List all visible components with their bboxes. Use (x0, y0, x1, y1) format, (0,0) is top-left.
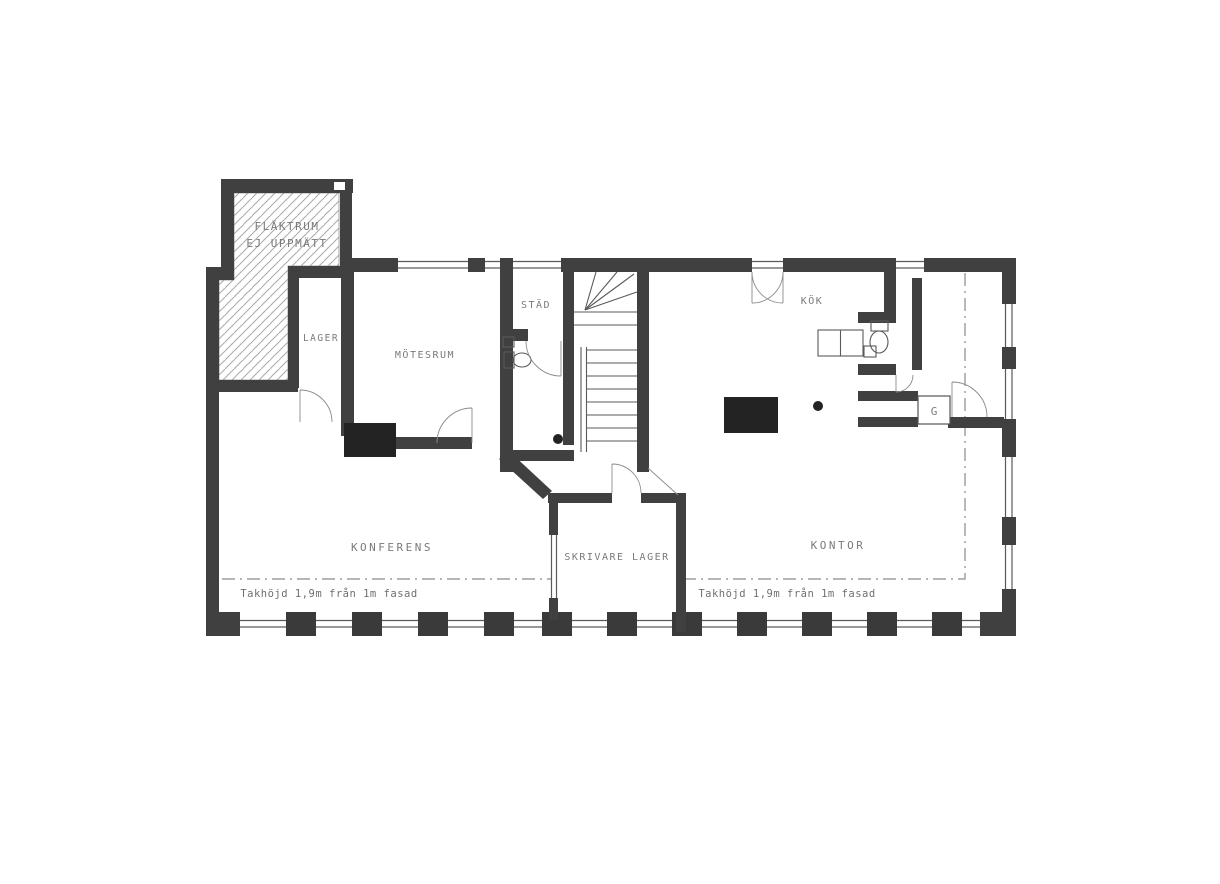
room-label-garderob: G (931, 405, 938, 418)
room-label-flaktrum-line2: EJ UPPMÄTT (246, 237, 327, 250)
toilet-bowl-right (870, 331, 888, 353)
toilet-bowl-left (513, 353, 531, 367)
column-dot-right (813, 401, 823, 411)
pillar-shaft-right (724, 397, 778, 433)
glazed-partition (552, 535, 557, 598)
annotation-ceiling-height-right: Takhöjd 1,9m från 1m fasad (698, 587, 875, 600)
room-label-konferens: KONFERENS (351, 541, 433, 554)
room-label-stad: STÄD (521, 298, 551, 311)
ceiling-height-dashed-lines (222, 273, 965, 579)
annotation-ceiling-height-left: Takhöjd 1,9m från 1m fasad (240, 587, 417, 600)
scanned-floorplan-page: FLÄKTRUM EJ UPPMÄTT LAGER MÖTESRUM STÄD … (0, 0, 1220, 884)
floor-plan-drawing: FLÄKTRUM EJ UPPMÄTT LAGER MÖTESRUM STÄD … (0, 0, 1220, 884)
pillar-shaft-left (344, 423, 396, 457)
room-label-flaktrum-line1: FLÄKTRUM (255, 220, 320, 233)
interior-walls (206, 258, 1004, 632)
staircase (574, 272, 637, 452)
column-dot-left (553, 434, 563, 444)
room-label-skrivare-lager: SKRIVARE LAGER (564, 552, 669, 563)
top-wall-notch (334, 182, 345, 190)
room-label-motesrum: MÖTESRUM (395, 348, 455, 361)
room-label-kontor: KONTOR (811, 539, 866, 552)
room-label-lager: LAGER (303, 333, 339, 344)
bottom-facade-piers (286, 612, 962, 636)
room-label-kok: KÖK (801, 294, 824, 307)
